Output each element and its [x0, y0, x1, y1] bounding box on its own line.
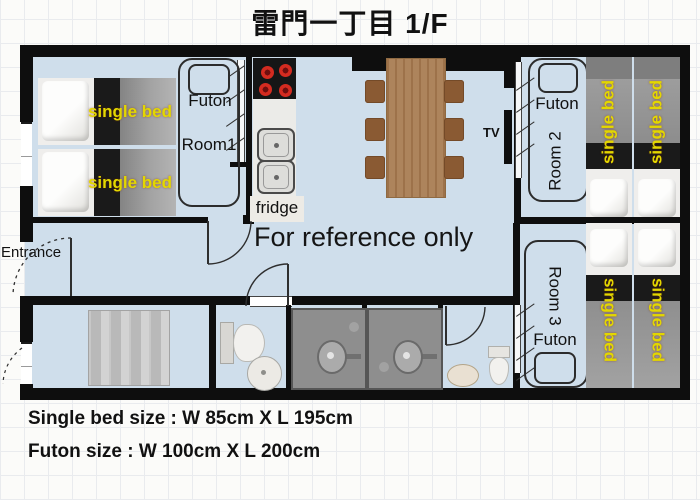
shower-rail — [345, 354, 361, 359]
bed-label: single bed — [600, 278, 619, 362]
pillow — [42, 81, 89, 141]
shower-knob — [403, 352, 410, 359]
wall-room1-bottom — [25, 217, 208, 223]
futon-label-room1: Futon — [178, 92, 242, 111]
sliding-door-room2 — [515, 62, 522, 178]
pillow — [42, 152, 89, 212]
room1-label: Room1 — [174, 136, 244, 155]
chair — [365, 80, 385, 103]
window-left-lower — [21, 342, 32, 390]
fridge-label: fridge — [248, 199, 306, 218]
bed-room3-a: single bed — [586, 223, 632, 388]
burner — [261, 66, 274, 79]
entrance-label: Entrance — [1, 245, 61, 262]
size-notes: Single bed size : W 85cm X L 195cm Futon… — [28, 408, 353, 474]
room2-label: Room 2 — [547, 131, 566, 191]
bed-room1-b: single bed — [38, 149, 176, 216]
bed-label: single bed — [648, 278, 667, 362]
wall-left-b — [20, 186, 33, 242]
futon-label-room3: Futon — [522, 331, 588, 350]
shower-knob — [327, 352, 334, 359]
burner — [279, 84, 292, 97]
kitchen-sink-upper — [257, 128, 295, 162]
burner — [279, 64, 292, 77]
storage-shelf — [88, 310, 170, 386]
bed-label: single bed — [600, 80, 619, 164]
burner — [259, 83, 272, 96]
wall-storage-right — [209, 305, 216, 388]
wall-left-d — [20, 384, 33, 400]
futon-pillow-room3 — [534, 352, 576, 384]
plan-title: 雷門一丁目 1/F — [0, 2, 700, 42]
futon-label-room2: Futon — [526, 95, 588, 114]
pillow — [638, 229, 676, 267]
pillow — [590, 229, 628, 267]
bed-label: single bed — [84, 173, 176, 193]
futon-pillow-room2 — [538, 63, 578, 93]
single-bed-size-note: Single bed size : W 85cm X L 195cm — [28, 408, 353, 430]
tv — [504, 110, 512, 164]
tv-label: TV — [483, 126, 500, 140]
bed-room2-a: single bed — [586, 57, 632, 217]
shower-room-1 — [291, 308, 367, 390]
chair — [444, 156, 464, 179]
bed-room2-b: single bed — [634, 57, 680, 217]
shower-rail — [421, 354, 437, 359]
wall-corridor-bottom-right — [292, 296, 516, 305]
room3-label: Room 3 — [545, 266, 564, 326]
washbasin-drain — [261, 370, 266, 375]
bed-blanket-fold — [586, 57, 632, 79]
wall-corridor-bottom-left — [25, 296, 250, 305]
bed-label: single bed — [648, 80, 667, 164]
bed-blanket-fold — [634, 57, 680, 79]
shower-room-2 — [367, 308, 443, 390]
pillow — [638, 179, 676, 217]
bed-room1-a: single bed — [38, 78, 176, 145]
chair — [365, 118, 385, 141]
kitchen-sink-lower — [257, 160, 295, 194]
toilet-tank — [220, 322, 234, 364]
futon-size-note: Futon size : W 100cm X L 200cm — [28, 441, 353, 463]
floor-plan: 雷門一丁目 1/F single bed — [0, 0, 700, 500]
shower-fitting — [349, 322, 359, 332]
watermark-text: For reference only — [254, 222, 473, 253]
chair — [365, 156, 385, 179]
shower-fitting — [379, 362, 389, 372]
bed-room3-b: single bed — [634, 223, 680, 388]
bed-label: single bed — [84, 102, 176, 122]
chair — [444, 80, 464, 103]
chair — [444, 118, 464, 141]
stove — [253, 58, 296, 99]
dining-table — [386, 58, 446, 198]
side-door-arc — [3, 348, 22, 384]
pillow — [590, 179, 628, 217]
wall-left-a — [20, 45, 33, 122]
window-left-upper — [21, 122, 32, 190]
washbasin-oval — [447, 364, 479, 387]
